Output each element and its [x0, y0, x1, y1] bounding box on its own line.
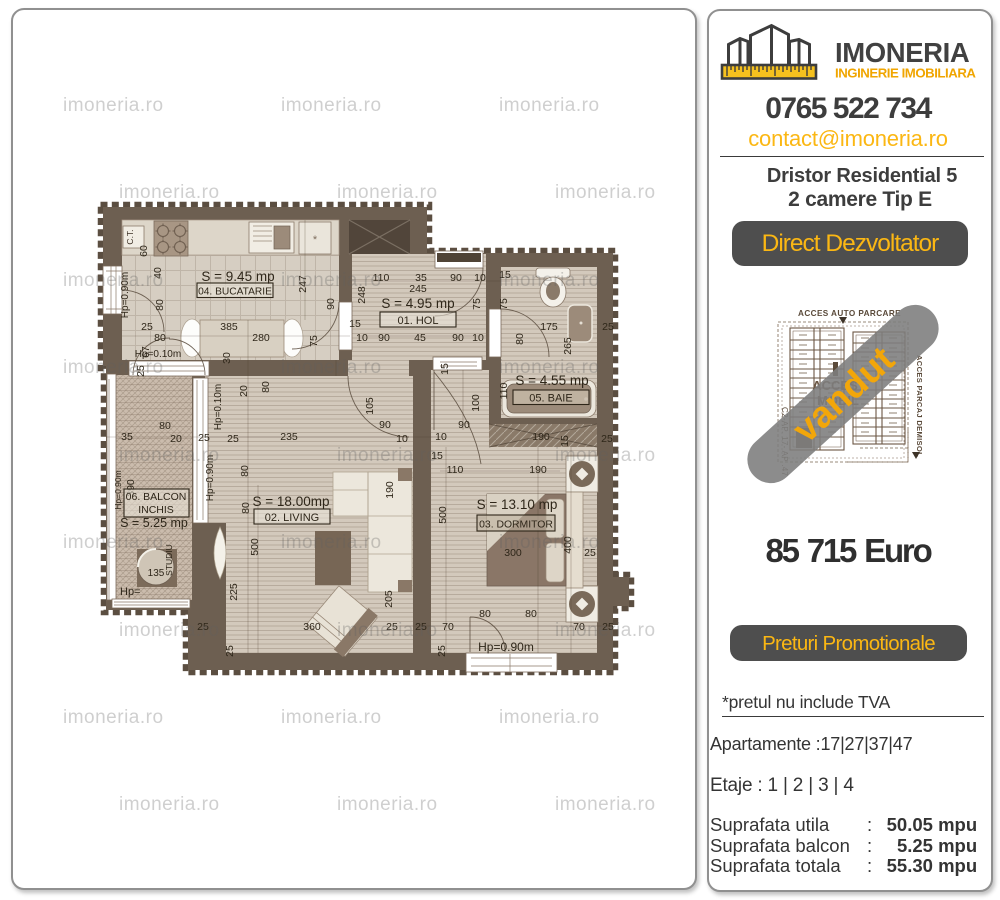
svg-text:25: 25	[198, 432, 210, 444]
svg-text:90: 90	[379, 419, 391, 431]
svg-text:110: 110	[447, 464, 464, 476]
svg-text:10: 10	[396, 433, 408, 445]
svg-text:75: 75	[308, 335, 320, 347]
svg-text:245: 245	[409, 283, 427, 295]
svg-text:265: 265	[562, 337, 574, 355]
svg-text:100: 100	[470, 394, 482, 412]
svg-text:25: 25	[436, 645, 448, 657]
svg-text:105: 105	[364, 397, 376, 415]
svg-text:S = 13.10 mp: S = 13.10 mp	[477, 497, 558, 512]
svg-text:10: 10	[472, 332, 484, 344]
svg-text:190: 190	[529, 464, 547, 476]
svg-text:75: 75	[471, 298, 483, 310]
svg-text:20: 20	[238, 385, 250, 397]
svg-text:Hp=0.90m: Hp=0.90m	[478, 640, 534, 654]
svg-text:500: 500	[437, 506, 449, 524]
svg-text:10: 10	[435, 431, 447, 443]
svg-text:25: 25	[141, 321, 153, 333]
svg-text:225: 225	[228, 583, 240, 601]
svg-text:02. LIVING: 02. LIVING	[265, 512, 319, 524]
svg-text:135: 135	[148, 568, 165, 579]
svg-text:25: 25	[227, 433, 239, 445]
svg-text:35: 35	[121, 431, 133, 443]
svg-text:385: 385	[220, 321, 238, 333]
svg-text:INCHIS: INCHIS	[138, 504, 174, 516]
svg-text:IMONERIA: IMONERIA	[835, 37, 970, 68]
svg-text:10: 10	[474, 272, 486, 284]
svg-text:STUDIU: STUDIU	[164, 544, 174, 576]
svg-text:90: 90	[458, 419, 470, 431]
svg-text:500: 500	[249, 538, 261, 556]
svg-text:80: 80	[159, 420, 171, 432]
svg-text:C.T.: C.T.	[125, 229, 135, 244]
svg-text:280: 280	[252, 332, 270, 344]
svg-text:90: 90	[325, 298, 337, 310]
svg-text:S = 4.95 mp: S = 4.95 mp	[381, 296, 454, 311]
svg-text:80: 80	[154, 332, 166, 344]
svg-text:Hp=0.90m: Hp=0.90m	[113, 470, 123, 509]
svg-text:04. BUCATARIE: 04. BUCATARIE	[198, 287, 272, 298]
svg-text:80: 80	[514, 333, 526, 345]
svg-text:15: 15	[439, 363, 451, 375]
svg-text:80: 80	[239, 465, 251, 477]
svg-text:80: 80	[154, 299, 166, 311]
svg-text:vandut: vandut	[785, 338, 902, 450]
svg-text:20: 20	[170, 433, 182, 445]
svg-text:25: 25	[224, 645, 236, 657]
svg-text:90: 90	[378, 332, 390, 344]
svg-text:S = 18.00mp: S = 18.00mp	[253, 494, 330, 509]
svg-text:10: 10	[356, 332, 368, 344]
svg-text:175: 175	[540, 321, 558, 333]
svg-text:45: 45	[414, 332, 426, 344]
svg-text:90: 90	[450, 272, 462, 284]
svg-text:110: 110	[498, 382, 510, 399]
svg-text:ACCES AUTO PARCARE: ACCES AUTO PARCARE	[798, 309, 901, 318]
svg-text:S = 9.45 mp: S = 9.45 mp	[201, 269, 274, 284]
svg-text:30: 30	[221, 352, 233, 364]
svg-text:INGINERIE IMOBILIARA: INGINERIE IMOBILIARA	[835, 66, 976, 81]
svg-text:Hp=0.10m: Hp=0.10m	[213, 384, 224, 430]
svg-text:205: 205	[383, 590, 395, 608]
svg-text:25: 25	[601, 433, 613, 445]
svg-text:S = 5.25 mp: S = 5.25 mp	[120, 516, 188, 530]
svg-text:25: 25	[602, 321, 614, 333]
svg-text:80: 80	[525, 608, 537, 620]
svg-text:235: 235	[280, 431, 298, 443]
svg-text:80: 80	[479, 608, 491, 620]
svg-text:Hp=: Hp=	[120, 586, 141, 598]
svg-text:80: 80	[260, 381, 272, 393]
svg-text:70: 70	[442, 621, 454, 633]
svg-text:360: 360	[303, 621, 321, 633]
svg-text:06. BALCON: 06. BALCON	[126, 491, 187, 503]
svg-text:15: 15	[349, 318, 361, 330]
svg-text:01. HOL: 01. HOL	[398, 315, 439, 327]
svg-text:ACCES PARCAJ DEMISOL: ACCES PARCAJ DEMISOL	[915, 355, 924, 457]
svg-text:60: 60	[138, 245, 150, 257]
svg-text:80: 80	[240, 502, 252, 514]
svg-text:190: 190	[384, 481, 396, 499]
svg-text:75: 75	[498, 298, 510, 310]
svg-text:190: 190	[532, 431, 550, 443]
svg-text:90: 90	[452, 332, 464, 344]
svg-text:03. DORMITOR: 03. DORMITOR	[479, 520, 553, 531]
svg-text:*: *	[313, 234, 318, 246]
svg-text:05. BAIE: 05. BAIE	[529, 393, 572, 405]
